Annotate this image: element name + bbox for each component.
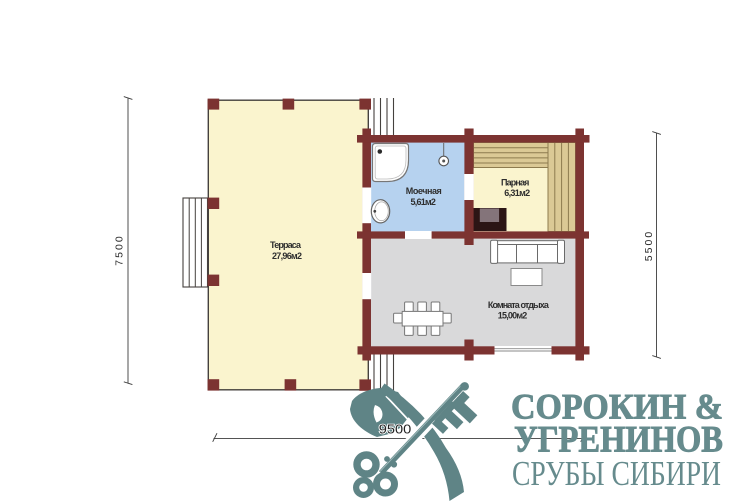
svg-text:СРУБЫ СИБИРИ: СРУБЫ СИБИРИ (512, 454, 721, 493)
svg-text:6,31м2: 6,31м2 (504, 188, 530, 198)
svg-text:Парная: Парная (501, 177, 530, 187)
svg-text:27,96м2: 27,96м2 (272, 251, 302, 261)
svg-text:15,00м2: 15,00м2 (498, 311, 528, 321)
svg-text:9500: 9500 (379, 422, 412, 437)
svg-text:7500: 7500 (113, 234, 125, 265)
svg-text:5500: 5500 (643, 230, 655, 261)
svg-text:5,61м2: 5,61м2 (410, 197, 436, 207)
svg-text:Терраса: Терраса (270, 240, 302, 250)
svg-text:Моечная: Моечная (406, 186, 442, 196)
svg-text:Комната отдыха: Комната отдыха (488, 300, 550, 310)
